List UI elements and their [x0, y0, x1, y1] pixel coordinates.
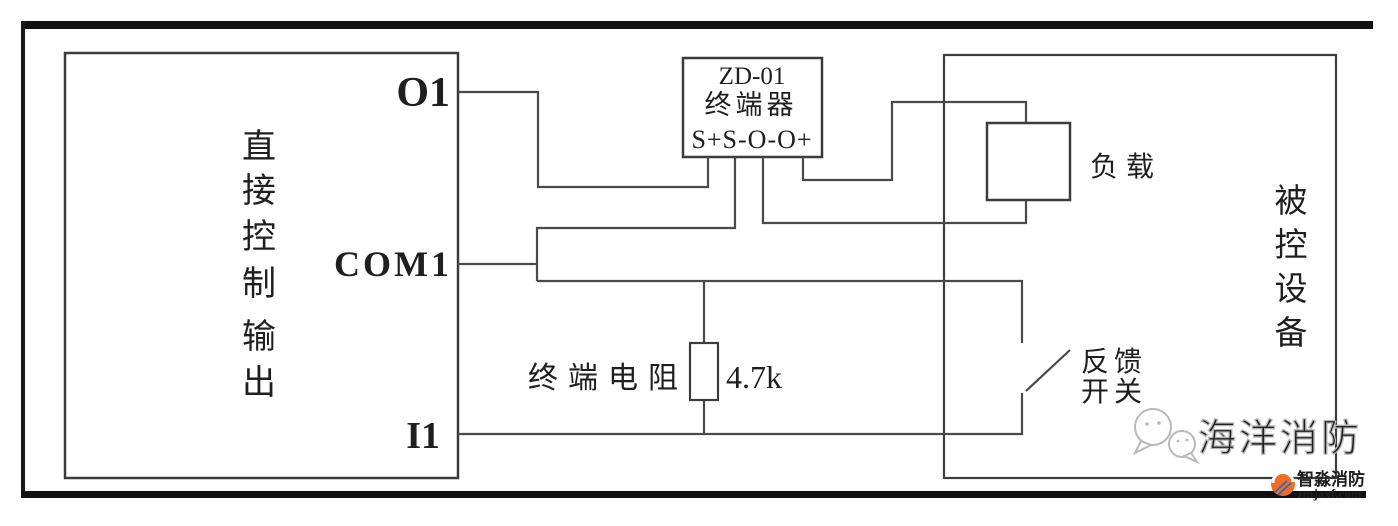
wiring-diagram: O1 COM1 I1 直 接 控 制 输 出 ZD-01 终端器 S+S-O-O…: [0, 0, 1398, 526]
controlled-box-char-3: 设: [1275, 272, 1308, 308]
feedback-switch-label-line1: 反馈: [1081, 346, 1147, 378]
wire-i1-to-feedback-switch: [458, 393, 1022, 434]
feedback-switch-label-line2: 开关: [1081, 376, 1147, 408]
terminator-name-label: 终端器: [705, 90, 798, 120]
zhimiao-logo-url: zmjaxf.com: [1297, 486, 1362, 501]
terminal-label-o1: O1: [396, 70, 450, 116]
wire-o1-to-s-plus: [458, 92, 708, 187]
controlled-device-title: 被 控 设 备: [1275, 183, 1308, 352]
wire-com-to-feedback-switch: [537, 281, 1022, 343]
direct-control-output-title: 直 接 控 制 输 出: [242, 128, 276, 402]
frame-top-bar: [21, 21, 1373, 29]
load-label: 负载: [1090, 151, 1162, 183]
controlled-box-char-2: 控: [1275, 227, 1308, 264]
left-box-char-6: 出: [242, 364, 276, 402]
controlled-box-char-1: 被: [1275, 183, 1308, 220]
left-box-char-4: 制: [242, 266, 276, 303]
resistor-label: 终端电阻: [528, 362, 688, 395]
left-box-char-1: 直: [242, 128, 276, 166]
haiyang-watermark: 海洋消防: [1135, 409, 1362, 462]
left-box-char-3: 控: [242, 218, 276, 256]
haiyang-watermark-text: 海洋消防: [1198, 418, 1362, 460]
controlled-box-char-4: 备: [1275, 315, 1308, 352]
terminator-model-label: ZD-01: [719, 63, 786, 90]
load-box: [987, 123, 1070, 200]
diagram-canvas: O1 COM1 I1 直 接 控 制 输 出 ZD-01 终端器 S+S-O-O…: [0, 0, 1398, 526]
left-box-char-5: 输: [242, 318, 276, 356]
feedback-switch-blade: [1026, 350, 1070, 391]
frame-bottom-bar: [21, 491, 1366, 498]
wire-s-minus-to-junction: [537, 157, 735, 281]
wechat-icon: [1135, 409, 1197, 462]
resistor-symbol: [690, 343, 718, 400]
left-box-char-2: 接: [242, 173, 276, 210]
terminator-pins-label: S+S-O-O+: [691, 125, 812, 154]
terminal-label-com1: COM1: [334, 244, 452, 284]
terminal-label-i1: I1: [406, 415, 440, 457]
resistor-value: 4.7k: [726, 359, 782, 395]
frame-left-bar: [21, 21, 25, 498]
